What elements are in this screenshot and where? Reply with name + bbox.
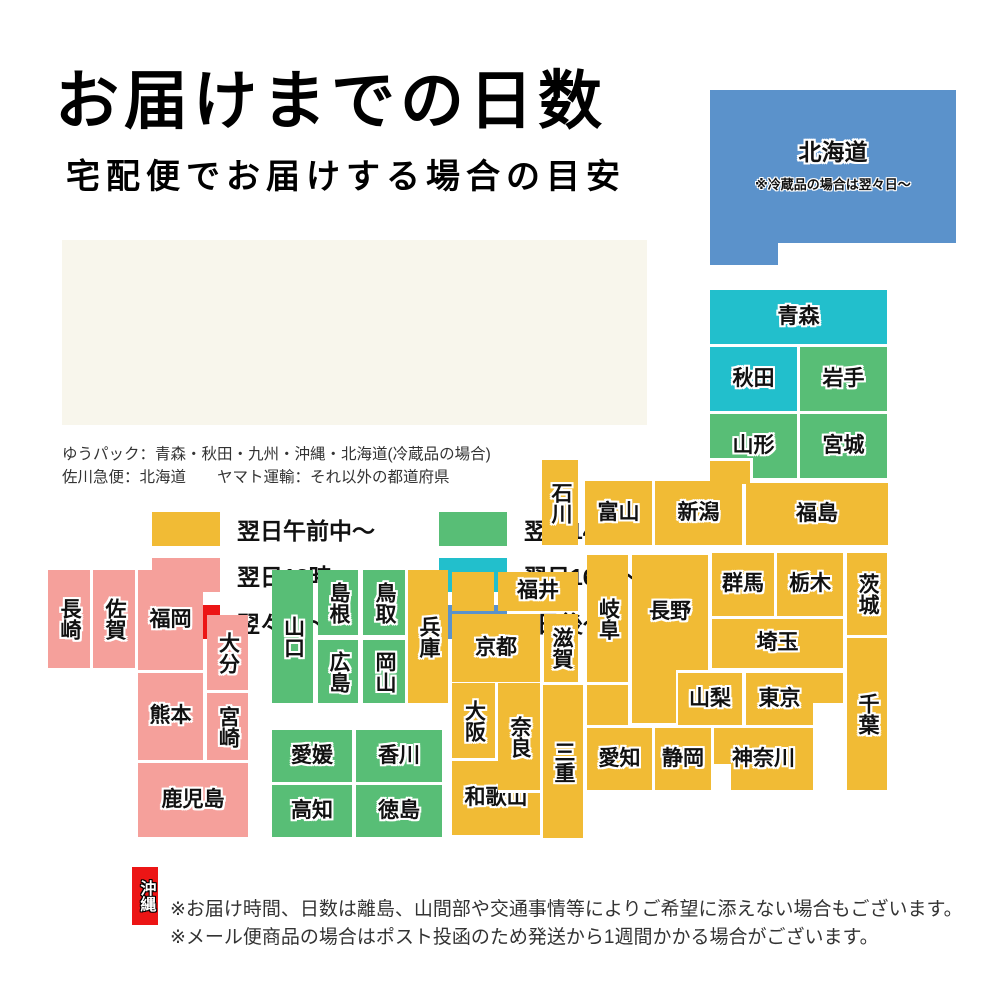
prefecture-label: 大分 xyxy=(216,632,238,674)
prefecture-label: 愛媛 xyxy=(291,745,333,767)
prefecture-label: 東京 xyxy=(759,688,801,710)
prefecture-chiba-conn xyxy=(813,673,843,703)
prefecture-gifu: 岐阜 xyxy=(587,555,628,682)
prefecture-hyogo: 兵庫 xyxy=(408,570,448,703)
prefecture-nara: 奈良 xyxy=(498,683,540,793)
prefecture-label: 岩手 xyxy=(823,368,865,390)
prefecture-ehime: 愛媛 xyxy=(272,730,352,782)
prefecture-label: 富山 xyxy=(598,502,640,524)
prefecture-label: 沖縄 xyxy=(137,880,154,912)
prefecture-ibaraki: 茨城 xyxy=(847,553,887,635)
prefecture-label: 兵庫 xyxy=(417,616,439,658)
prefecture-label: 宮崎 xyxy=(216,706,238,748)
prefecture-label: 大阪 xyxy=(462,700,484,742)
prefecture-label: 福岡 xyxy=(150,609,192,631)
prefecture-ishikawa: 石川 xyxy=(542,460,578,545)
prefecture-label: 栃木 xyxy=(789,573,831,595)
footer-notes: ※お届け時間、日数は離島、山間部や交通事情等によりご希望に添えない場合もございま… xyxy=(170,896,963,951)
prefecture-saitama: 埼玉 xyxy=(712,619,843,668)
japan-map: 北海道※冷蔵品の場合は翌々日〜青森秋田岩手山形宮城石川富山新潟福島群馬栃木茨城埼… xyxy=(0,0,1000,1000)
prefecture-fukuoka: 福岡 xyxy=(138,570,203,670)
prefecture-miyagi: 宮城 xyxy=(800,414,887,478)
prefecture-label: 徳島 xyxy=(378,800,420,822)
prefecture-saga: 佐賀 xyxy=(93,570,135,668)
prefecture-label: 山形 xyxy=(733,435,775,457)
prefecture-label: 山口 xyxy=(281,616,303,658)
prefecture-tokyo: 東京 xyxy=(746,673,813,725)
prefecture-label: 静岡 xyxy=(662,748,704,770)
prefecture-label: 長崎 xyxy=(58,598,80,640)
prefecture-kyoto: 京都 xyxy=(452,614,540,682)
prefecture-aomori: 青森 xyxy=(710,290,887,344)
prefecture-label: 千葉 xyxy=(856,693,878,735)
prefecture-tokushima: 徳島 xyxy=(356,785,442,837)
prefecture-oita: 大分 xyxy=(207,615,248,690)
prefecture-label: 埼玉 xyxy=(757,632,799,654)
prefecture-tottori: 鳥取 xyxy=(363,570,405,635)
prefecture-label: 奈良 xyxy=(508,716,530,758)
prefecture-label: 神奈川 xyxy=(732,748,795,770)
prefecture-shizuoka: 静岡 xyxy=(655,728,711,790)
prefecture-label: 高知 xyxy=(291,800,333,822)
prefecture-label: 山梨 xyxy=(689,688,731,710)
prefecture-label: 青森 xyxy=(778,306,820,328)
prefecture-nagasaki: 長崎 xyxy=(48,570,90,668)
prefecture-label: 鳥取 xyxy=(373,582,395,624)
prefecture-yamanashi: 山梨 xyxy=(678,673,742,725)
prefecture-toyama: 富山 xyxy=(585,481,652,545)
prefecture-aichi: 愛知 xyxy=(587,728,652,790)
hokkaido-note: ※冷蔵品の場合は翌々日〜 xyxy=(755,174,911,193)
prefecture-fukushima: 福島 xyxy=(746,483,888,545)
prefecture-kyoto-tab xyxy=(452,572,494,611)
prefecture-kagawa: 香川 xyxy=(356,730,442,782)
prefecture-label: 福島 xyxy=(796,503,838,525)
prefecture-shiga: 滋賀 xyxy=(544,614,578,682)
prefecture-mie: 三重 xyxy=(543,685,583,838)
prefecture-nagano: 長野 xyxy=(632,555,708,670)
prefecture-hokkaido: 北海道※冷蔵品の場合は翌々日〜 xyxy=(710,90,956,243)
prefecture-label: 愛知 xyxy=(599,748,641,770)
prefecture-yamaguchi: 山口 xyxy=(272,570,313,703)
prefecture-label: 宮城 xyxy=(823,435,865,457)
prefecture-label: 香川 xyxy=(378,745,420,767)
prefecture-label: 広島 xyxy=(327,651,349,693)
prefecture-label: 岡山 xyxy=(373,651,395,693)
prefecture-mie-tab xyxy=(587,685,628,725)
footer-note-line2: ※メール便商品の場合はポスト投函のため発送から1週間かかる場合がございます。 xyxy=(170,924,963,952)
prefecture-fukui: 福井 xyxy=(498,572,578,611)
prefecture-miyazaki: 宮崎 xyxy=(207,693,248,760)
delivery-days-infographic: お届けまでの日数 宅配便でお届けする場合の目安 翌日午前中〜翌日18時〜翌々日〜… xyxy=(0,0,1000,1000)
prefecture-label: 三重 xyxy=(552,741,574,783)
prefecture-label: 群馬 xyxy=(722,573,764,595)
prefecture-kumamoto: 熊本 xyxy=(138,673,203,760)
prefecture-label: 滋賀 xyxy=(550,627,572,669)
prefecture-label: 福井 xyxy=(517,580,559,602)
prefecture-label: 茨城 xyxy=(856,573,878,615)
prefecture-osaka: 大阪 xyxy=(452,683,495,758)
prefecture-okayama: 岡山 xyxy=(363,640,405,703)
prefecture-iwate: 岩手 xyxy=(800,347,887,411)
prefecture-chiba: 千葉 xyxy=(847,638,887,790)
prefecture-label: 岐阜 xyxy=(596,598,618,640)
prefecture-label: 長野 xyxy=(649,601,691,623)
prefecture-label: 島根 xyxy=(327,582,349,624)
prefecture-hiroshima: 広島 xyxy=(318,640,358,703)
prefecture-kochi: 高知 xyxy=(272,785,352,837)
prefecture-okinawa: 沖縄 xyxy=(132,867,158,925)
prefecture-hokkaido-tab xyxy=(710,243,778,265)
prefecture-label: 秋田 xyxy=(733,368,775,390)
prefecture-gunma: 群馬 xyxy=(712,553,774,616)
prefecture-akita: 秋田 xyxy=(710,347,797,411)
prefecture-label: 北海道 xyxy=(799,140,868,164)
prefecture-label: 熊本 xyxy=(150,705,192,727)
prefecture-kagoshima: 鹿児島 xyxy=(138,763,248,837)
prefecture-niigata: 新潟 xyxy=(655,481,742,545)
footer-note-line1: ※お届け時間、日数は離島、山間部や交通事情等によりご希望に添えない場合もございま… xyxy=(170,896,963,924)
prefecture-label: 石川 xyxy=(549,482,571,524)
prefecture-label: 新潟 xyxy=(678,502,720,524)
prefecture-label: 鹿児島 xyxy=(162,789,225,811)
prefecture-tochigi: 栃木 xyxy=(777,553,843,616)
prefecture-shimane: 島根 xyxy=(318,570,358,635)
prefecture-kanagawa-notch xyxy=(714,764,731,790)
prefecture-label: 佐賀 xyxy=(103,598,125,640)
prefecture-label: 京都 xyxy=(475,637,517,659)
